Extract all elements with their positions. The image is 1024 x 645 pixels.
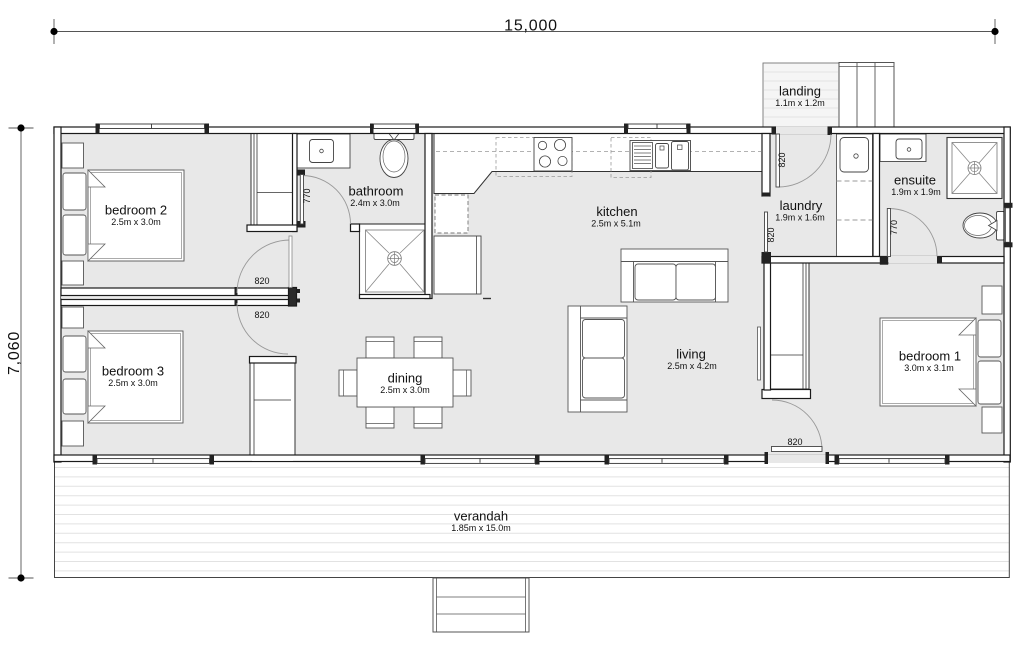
svg-text:verandah: verandah <box>454 509 508 524</box>
svg-text:landing: landing <box>779 84 821 99</box>
svg-text:2.5m x 3.0m: 2.5m x 3.0m <box>108 378 158 388</box>
svg-text:820: 820 <box>787 437 802 447</box>
svg-text:2.4m x 3.0m: 2.4m x 3.0m <box>350 198 400 208</box>
svg-text:1.9m x 1.6m: 1.9m x 1.6m <box>775 213 825 223</box>
svg-text:kitchen: kitchen <box>596 204 637 219</box>
svg-text:7,060: 7,060 <box>6 331 23 375</box>
svg-text:3.0m x 3.1m: 3.0m x 3.1m <box>904 363 954 373</box>
svg-text:770: 770 <box>302 188 312 203</box>
svg-text:1.85m x 15.0m: 1.85m x 15.0m <box>451 523 511 533</box>
svg-text:living: living <box>676 347 706 362</box>
svg-text:dining: dining <box>388 371 423 386</box>
svg-text:2.5m x 4.2m: 2.5m x 4.2m <box>667 361 717 371</box>
svg-text:820: 820 <box>777 152 787 167</box>
svg-text:2.5m x 3.0m: 2.5m x 3.0m <box>380 385 430 395</box>
svg-text:820: 820 <box>254 276 269 286</box>
svg-text:ensuite: ensuite <box>894 173 936 188</box>
svg-text:1.1m x 1.2m: 1.1m x 1.2m <box>775 98 825 108</box>
svg-text:2.5m x 5.1m: 2.5m x 5.1m <box>591 219 641 229</box>
svg-text:bathroom: bathroom <box>349 184 404 199</box>
svg-text:820: 820 <box>254 310 269 320</box>
svg-text:bedroom 3: bedroom 3 <box>102 364 164 379</box>
svg-text:1.9m x 1.9m: 1.9m x 1.9m <box>891 187 941 197</box>
svg-text:770: 770 <box>889 220 899 235</box>
svg-text:laundry: laundry <box>780 198 823 213</box>
svg-text:15,000: 15,000 <box>504 18 558 35</box>
svg-text:bedroom 1: bedroom 1 <box>899 349 961 364</box>
svg-text:820: 820 <box>766 227 776 242</box>
svg-text:bedroom 2: bedroom 2 <box>105 203 167 218</box>
svg-text:2.5m x 3.0m: 2.5m x 3.0m <box>111 217 161 227</box>
